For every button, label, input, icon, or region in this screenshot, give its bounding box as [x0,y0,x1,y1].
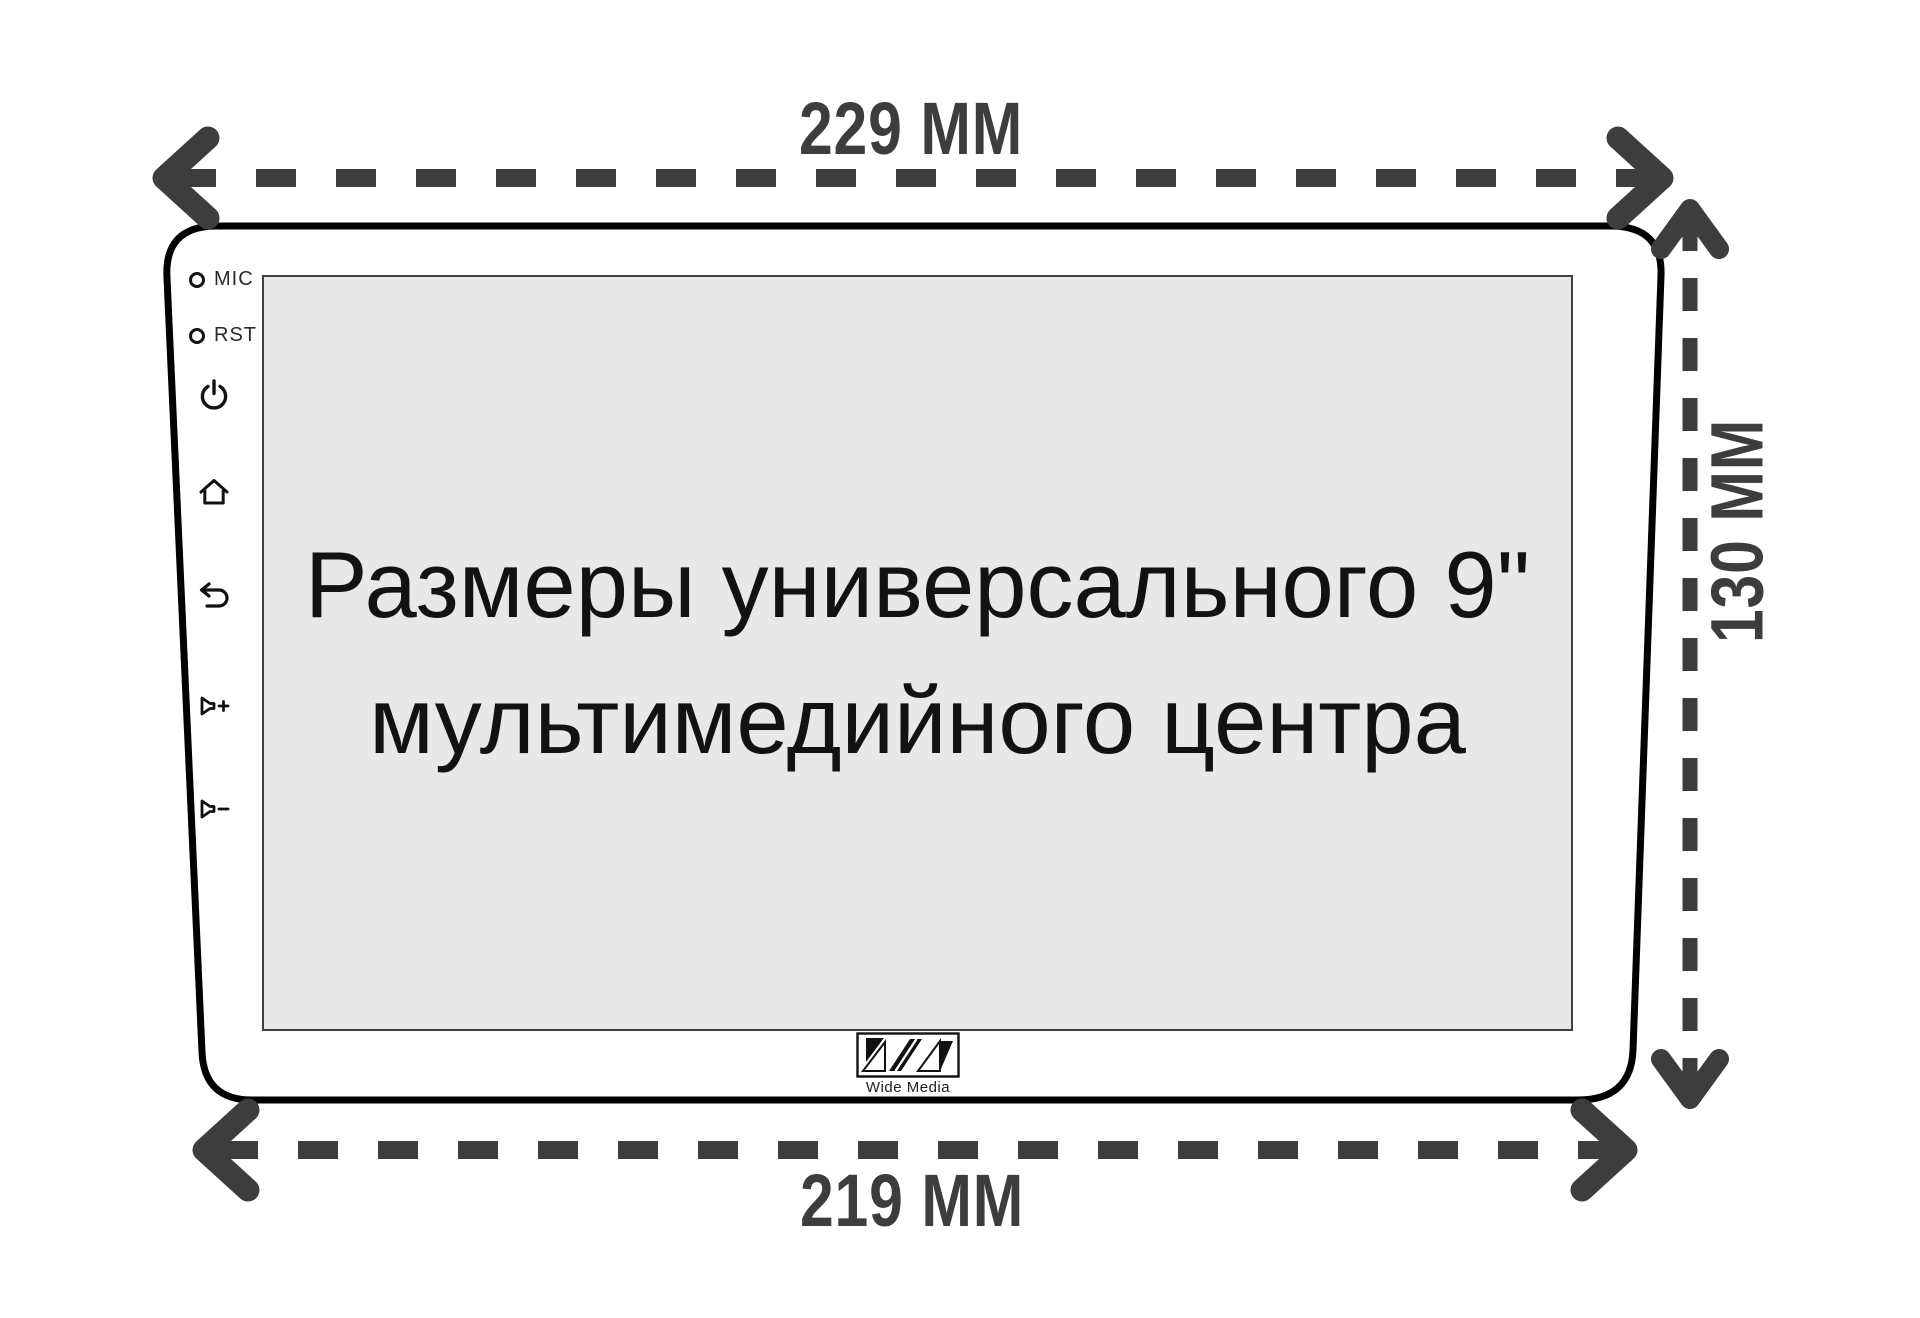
mic-hole: MIC [189,268,254,291]
wide-media-logo-icon [856,1032,960,1078]
bottom-width-label: 219 MM [800,1158,1024,1243]
right-height-arrow [1661,209,1719,1099]
device-screen: Размеры универсального 9" мультимедийног… [262,275,1573,1031]
volume-up-icon [197,689,235,721]
home-icon [196,474,232,510]
brand-name: Wide Media [866,1079,950,1096]
power-icon [198,378,230,412]
right-height-label: 130 MM [1695,419,1780,643]
mic-hole-icon [189,272,205,288]
brand-block: Wide Media [854,1032,962,1096]
reset-hole-icon [189,328,205,344]
screen-caption-line2: мультимедийного центра [369,653,1466,789]
volume-down-icon [197,792,235,824]
back-icon [194,580,234,612]
reset-hole: RST [189,324,257,347]
reset-label: RST [214,324,257,347]
diagram-canvas: 229 MM 219 MM 130 MM Размеры универсальн… [0,0,1920,1318]
top-width-label: 229 MM [799,86,1023,171]
screen-caption-line1: Размеры универсального 9" [305,517,1530,653]
mic-label: MIC [214,268,254,291]
